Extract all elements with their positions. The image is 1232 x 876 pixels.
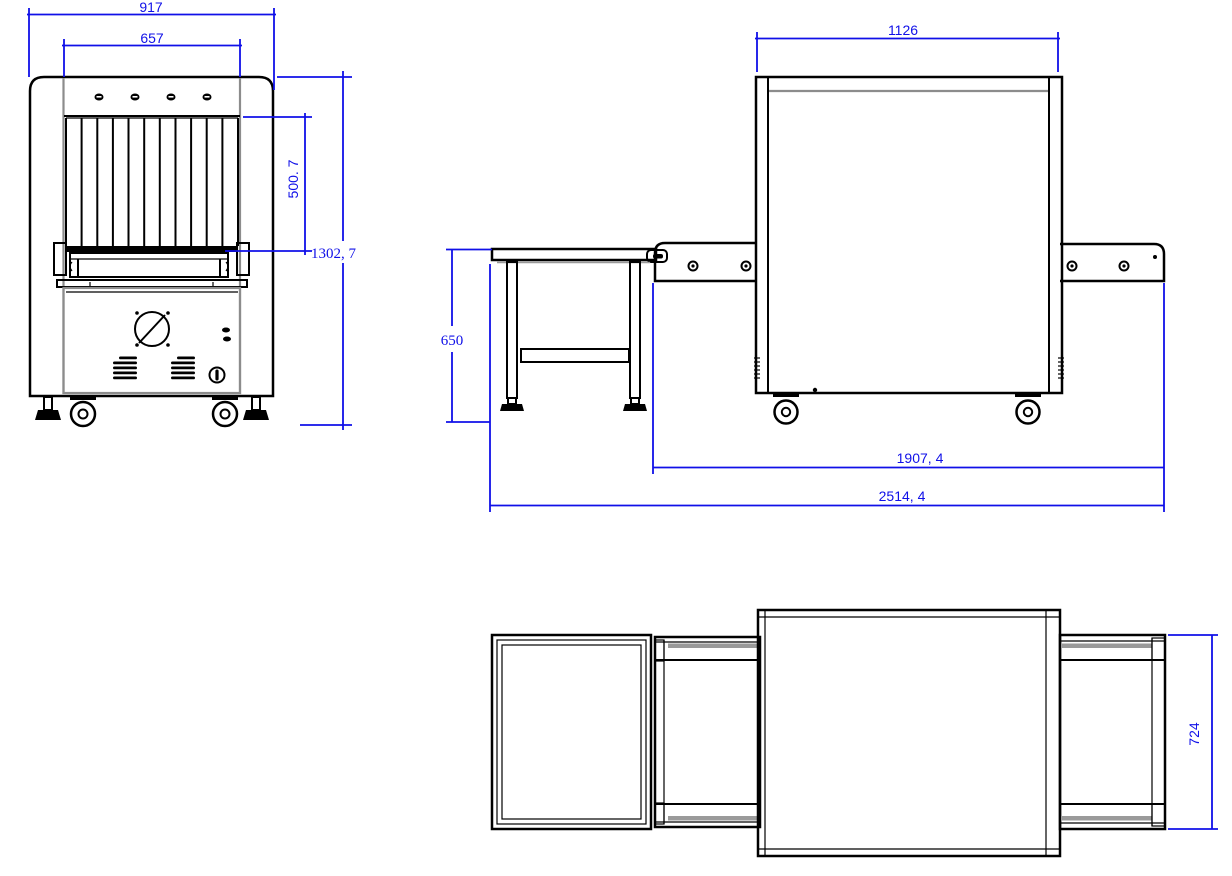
dim-label-2514-4: 2514, 4 [879, 488, 926, 504]
table-foot-left [500, 398, 524, 411]
exit-tunnel-extension [1060, 244, 1164, 281]
caster-wheel-front-right [212, 396, 238, 426]
dim-label-724: 724 [1186, 722, 1202, 746]
dim-label-657: 657 [140, 30, 164, 46]
dim-label-1126: 1126 [888, 22, 918, 38]
cad-drawing: 917 657 500. 7 1302, 7 [0, 0, 1232, 876]
top-view: 724 [492, 610, 1218, 856]
entry-roller-assembly [70, 253, 228, 277]
dim-label-650: 650 [441, 333, 464, 349]
caster-wheel-front-left [70, 396, 96, 426]
drawing-canvas: 917 657 500. 7 1302, 7 [0, 0, 1232, 876]
side-view: 1126 650 1907, 4 2514, 4 [441, 22, 1164, 512]
caster-wheel-side-right [1015, 393, 1041, 424]
leveling-foot-left [35, 397, 61, 420]
vent-grille-left [113, 357, 137, 380]
entrance-tunnel-extension [647, 243, 757, 281]
plan-main-body [758, 610, 1060, 856]
dim-label-500-7: 500. 7 [285, 159, 301, 198]
side-body-outline [756, 77, 1062, 393]
feed-table [492, 249, 656, 411]
indicator-lights [222, 328, 231, 342]
dim-front-tunnel-width: 657 [62, 30, 242, 77]
side-bracket-right [237, 243, 249, 275]
leveling-foot-right [243, 397, 269, 420]
control-knob [135, 311, 170, 347]
dim-label-1907-4: 1907, 4 [897, 450, 944, 466]
dim-side-machine-length: 1907, 4 [653, 283, 1164, 512]
plan-entrance-extension [655, 637, 760, 827]
dim-top-extension-width: 724 [1168, 635, 1218, 829]
lower-cabinet [64, 288, 241, 393]
dim-label-1302-7: 1302, 7 [311, 246, 357, 262]
plan-exit-extension [1060, 635, 1165, 829]
table-foot-right [623, 398, 647, 411]
deck-strip [57, 280, 247, 287]
dim-side-body-length: 1126 [755, 22, 1060, 72]
plan-feed-table [492, 635, 651, 829]
key-lock [210, 368, 225, 383]
front-view: 917 657 500. 7 1302, 7 [27, 0, 357, 430]
conveyor-belt-edge [66, 246, 238, 252]
dim-side-table-height: 650 [441, 250, 492, 423]
vent-grille-right [171, 357, 195, 380]
front-top-panel-holes [95, 94, 212, 101]
dim-label-917: 917 [139, 0, 163, 15]
tunnel-curtain [66, 118, 238, 246]
